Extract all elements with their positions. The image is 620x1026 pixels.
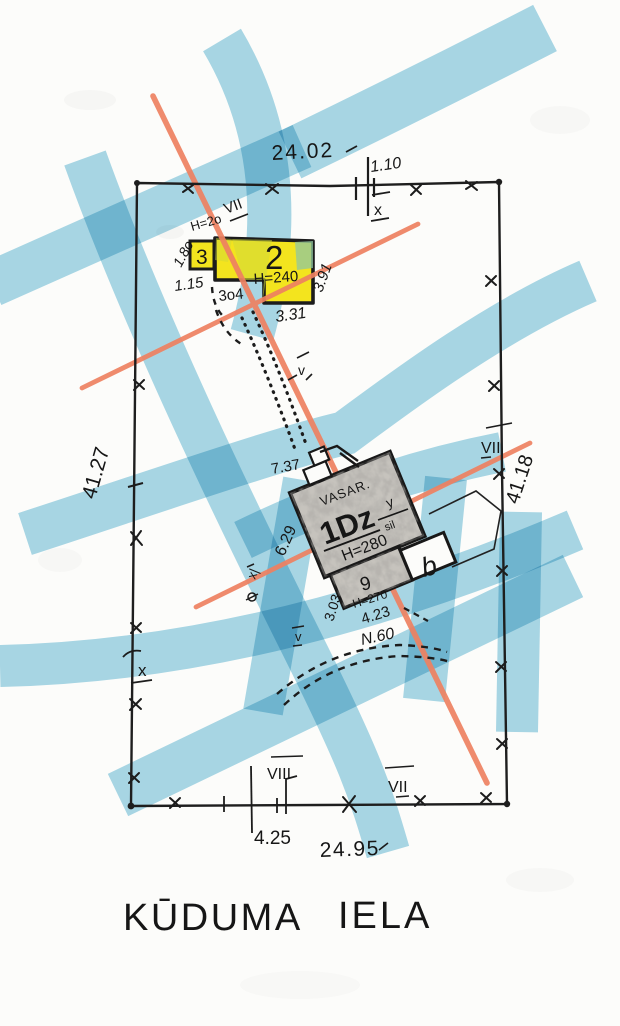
svg-text:KŪDUMA: KŪDUMA (123, 897, 303, 939)
svg-text:VII: VII (481, 440, 501, 457)
svg-text:x: x (374, 202, 382, 219)
svg-text:VII: VII (388, 779, 408, 796)
svg-text:4.25: 4.25 (254, 828, 291, 849)
svg-text:24.02: 24.02 (271, 139, 335, 165)
svg-text:24.95: 24.95 (319, 837, 380, 862)
svg-text:H=240: H=240 (253, 268, 299, 288)
svg-text:v: v (298, 362, 305, 378)
svg-text:3o4: 3o4 (218, 285, 245, 305)
svg-text:IELA: IELA (338, 895, 432, 937)
svg-text:3: 3 (196, 246, 208, 269)
svg-text:v: v (295, 629, 302, 644)
svg-text:VIII: VIII (267, 766, 291, 783)
svg-text:x: x (138, 661, 147, 680)
